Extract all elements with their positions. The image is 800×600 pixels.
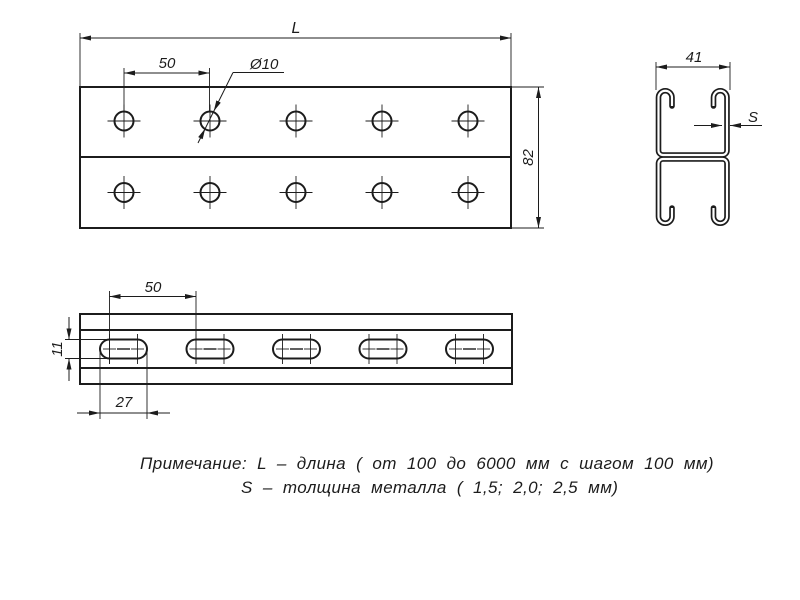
section-width-dimension-label: 41 <box>686 49 703 66</box>
notes: Примечание: L – длина ( от 100 до 6000 м… <box>140 454 714 497</box>
note-line-2: S – толщина металла ( 1,5; 2,0; 2,5 мм) <box>241 478 618 497</box>
cross-section-view: 41 S <box>656 49 762 223</box>
note-line-1: Примечание: L – длина ( от 100 до 6000 м… <box>140 454 714 473</box>
hole-spacing-dimension-label: 50 <box>159 55 176 72</box>
width-dimension: 82 <box>511 87 544 228</box>
thickness-dimension-label: S <box>748 109 758 126</box>
slot-spacing-dimension-label: 50 <box>145 279 162 296</box>
slot-length-dimension-label: 27 <box>115 394 133 411</box>
width-dimension-label: 82 <box>520 149 537 166</box>
upper-channel-profile <box>659 91 728 155</box>
slot-height-dimension-label: 11 <box>49 341 66 357</box>
technical-drawing-page: L 50 Ø10 82 <box>0 0 800 600</box>
length-dimension: L <box>80 20 511 87</box>
strut-channel-drawing: L 50 Ø10 82 <box>0 0 800 600</box>
top-view: L 50 Ø10 82 <box>80 20 544 228</box>
section-width-dimension: 41 <box>656 49 730 90</box>
length-dimension-label: L <box>292 20 301 37</box>
hole-diameter-label: Ø10 <box>249 56 279 73</box>
lower-channel-profile <box>659 159 728 223</box>
side-view: 50 11 27 <box>49 279 512 419</box>
